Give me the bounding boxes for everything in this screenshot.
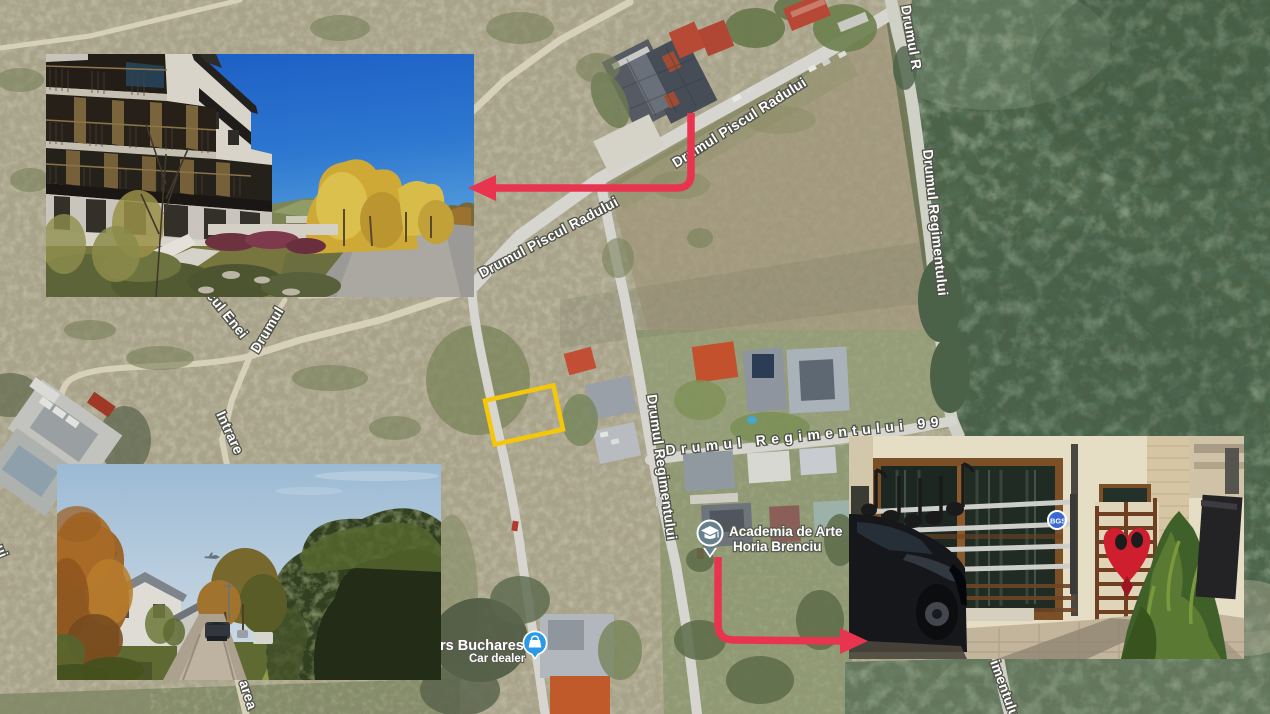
svg-text:Horia Brenciu: Horia Brenciu [733,539,822,554]
svg-text:BGS: BGS [1050,517,1066,526]
svg-text:Academia de Arte: Academia de Arte [729,524,843,539]
svg-text:Car dealer: Car dealer [469,653,526,665]
svg-text:rs Bucharest: rs Bucharest [440,638,529,654]
